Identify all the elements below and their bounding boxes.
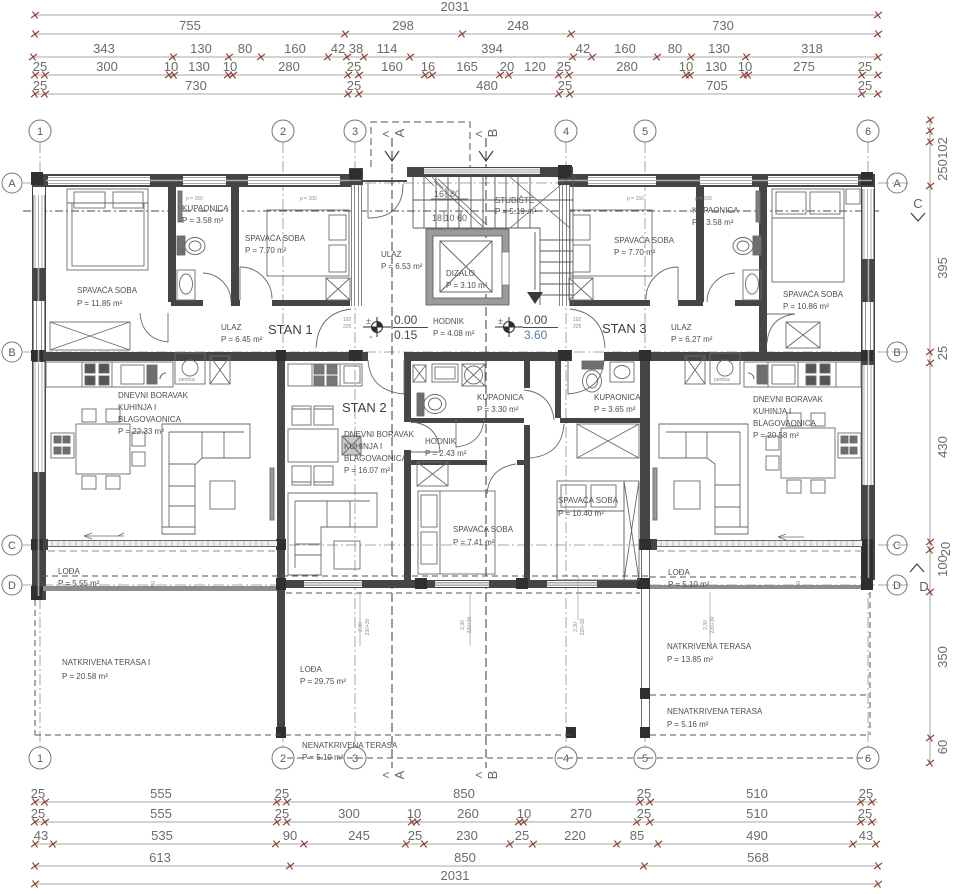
svg-text:350: 350 [935,646,950,668]
svg-text:BLAGOVAONICA: BLAGOVAONICA [118,415,182,424]
svg-text:C: C [893,540,901,552]
svg-text:3: 3 [352,126,358,138]
svg-text:480: 480 [476,78,498,93]
svg-text:NATKRIVENA TERASA: NATKRIVENA TERASA [667,642,752,651]
svg-text:P = 5.16 m²: P = 5.16 m² [667,720,709,729]
svg-text:P = 5.55 m²: P = 5.55 m² [58,579,100,588]
svg-text:±: ± [366,316,371,326]
svg-text:P = 22.33 m²: P = 22.33 m² [118,427,164,436]
svg-text:NENATKRIVENA TERASA: NENATKRIVENA TERASA [302,741,398,750]
svg-text:C: C [8,540,16,552]
svg-text:220+30: 220+30 [467,616,473,633]
svg-text:P = 3.30 m²: P = 3.30 m² [477,405,519,414]
svg-text:25: 25 [935,346,950,360]
svg-text:P = 29.75 m²: P = 29.75 m² [300,677,346,686]
svg-text:P = 7.41 m²: P = 7.41 m² [453,538,495,547]
svg-text:STAN 3: STAN 3 [602,321,647,336]
svg-text:C: C [913,196,922,211]
svg-text:25: 25 [31,806,45,821]
svg-text:P = 5.10 m²: P = 5.10 m² [668,580,710,589]
svg-text:850: 850 [453,786,475,801]
svg-text:250: 250 [935,159,950,181]
svg-text:25: 25 [31,786,45,801]
svg-text:P = 6.53 m²: P = 6.53 m² [381,262,423,271]
svg-text:KUHINJA I: KUHINJA I [753,407,791,416]
svg-text:25: 25 [557,59,571,74]
svg-text:280: 280 [278,59,300,74]
svg-text:perilica: perilica [179,377,195,383]
svg-text:NENATKRIVENA TERASA: NENATKRIVENA TERASA [667,707,763,716]
svg-text:p = 160: p = 160 [186,196,203,202]
svg-text:10: 10 [223,59,237,74]
svg-text:10: 10 [738,59,752,74]
svg-text:1: 1 [37,126,43,138]
svg-text:16: 16 [421,59,435,74]
svg-text:10: 10 [517,806,531,821]
svg-text:260: 260 [457,806,479,821]
svg-text:395: 395 [935,257,950,279]
svg-text:394: 394 [481,41,503,56]
svg-text:2,30: 2,30 [460,620,466,630]
svg-text:555: 555 [150,806,172,821]
svg-text:25: 25 [858,78,872,93]
svg-text:220+30: 220+30 [365,618,371,635]
svg-text:165: 165 [456,59,478,74]
svg-text:3: 3 [352,753,358,765]
svg-text:298: 298 [392,18,414,33]
svg-text:KUPAONICA: KUPAONICA [594,393,641,402]
svg-text:2031: 2031 [441,868,470,883]
svg-text:25: 25 [558,78,572,93]
svg-text:130: 130 [190,41,212,56]
svg-text:42: 42 [331,41,345,56]
svg-text:120: 120 [524,59,546,74]
svg-text:25: 25 [275,806,289,821]
svg-text:25: 25 [33,59,47,74]
svg-text:P = 5.19 m²: P = 5.19 m² [495,207,537,216]
svg-text:1: 1 [37,753,43,765]
svg-text:STAN 2: STAN 2 [342,400,387,415]
svg-text:130: 130 [705,59,727,74]
svg-text:20: 20 [938,542,953,556]
svg-text:BLAGOVAONICA: BLAGOVAONICA [344,454,408,463]
svg-text:755: 755 [179,18,201,33]
svg-text:160: 160 [284,41,306,56]
svg-text:90: 90 [283,828,297,843]
svg-text:275: 275 [793,59,815,74]
svg-text:P = 20.58 m²: P = 20.58 m² [753,431,799,440]
svg-text:P = 4.08 m²: P = 4.08 m² [433,329,475,338]
svg-text:220+30: 220+30 [710,616,716,633]
svg-text:2,30: 2,30 [358,622,364,632]
svg-text:280: 280 [616,59,638,74]
svg-text:B: B [8,347,15,359]
svg-text:20: 20 [500,59,514,74]
svg-text:A: A [392,128,407,137]
svg-text:P = 7.70 m²: P = 7.70 m² [614,248,656,257]
svg-text:P = 10.40 m²: P = 10.40 m² [558,509,604,518]
svg-text:300: 300 [96,59,118,74]
svg-text:±: ± [498,316,503,326]
svg-text:2,30: 2,30 [703,620,709,630]
svg-text:850: 850 [454,850,476,865]
svg-text:ULAZ: ULAZ [671,323,692,332]
svg-text:248: 248 [507,18,529,33]
svg-text:102: 102 [935,137,950,159]
svg-text:490: 490 [746,828,768,843]
svg-text:KUPAONICA: KUPAONICA [182,204,229,213]
svg-text:LOĐA: LOĐA [300,665,322,674]
svg-text:225: 225 [573,324,582,330]
svg-text:2031: 2031 [441,0,470,14]
svg-text:0.15: 0.15 [394,328,418,342]
svg-text:<: < [382,768,389,782]
svg-text:ULAZ: ULAZ [221,323,242,332]
svg-text:100: 100 [935,555,950,577]
svg-text:25: 25 [637,786,651,801]
svg-text:P = 5.10 m²: P = 5.10 m² [302,753,344,762]
svg-text:160: 160 [381,59,403,74]
svg-text:730: 730 [185,78,207,93]
svg-text:KUHINJA I: KUHINJA I [118,403,156,412]
svg-text:P = 3.10 m²: P = 3.10 m² [446,281,488,290]
svg-text:STAN 1: STAN 1 [268,322,313,337]
svg-text:10: 10 [407,806,421,821]
svg-text:p = 100: p = 100 [300,196,317,202]
svg-text:43: 43 [859,828,873,843]
svg-text:25: 25 [347,78,361,93]
svg-text:300: 300 [338,806,360,821]
svg-text:130: 130 [708,41,730,56]
svg-text:343: 343 [93,41,115,56]
svg-text:18 10 60: 18 10 60 [432,213,467,223]
svg-text:730: 730 [712,18,734,33]
svg-text:B: B [485,129,500,138]
svg-text:P = 10.86 m²: P = 10.86 m² [783,302,829,311]
svg-text:<: < [475,127,482,141]
svg-text:430: 430 [935,436,950,458]
svg-text:10: 10 [164,59,178,74]
svg-text:A: A [893,178,901,190]
svg-text:38: 38 [349,41,363,56]
svg-text:555: 555 [150,786,172,801]
svg-text:A: A [8,178,16,190]
svg-text:DNEVNI BORAVAK: DNEVNI BORAVAK [753,395,824,404]
svg-text:250: 250 [796,581,802,590]
svg-text:P = 7.70 m²: P = 7.70 m² [245,246,287,255]
svg-text:DNEVNI BORAVAK: DNEVNI BORAVAK [344,430,415,439]
svg-text:2: 2 [280,753,286,765]
svg-text:114: 114 [377,41,398,56]
svg-text:25: 25 [858,59,872,74]
svg-text:270: 270 [570,806,592,821]
svg-text:10: 10 [679,59,693,74]
svg-text:BLAGOVAONICA: BLAGOVAONICA [753,419,817,428]
svg-text:P = 11.85 m²: P = 11.85 m² [77,299,123,308]
svg-text:<: < [382,127,389,141]
svg-text:-: - [369,331,373,343]
svg-text:613: 613 [149,850,171,865]
svg-text:6: 6 [865,753,871,765]
svg-text:102: 102 [573,317,582,323]
svg-text:B: B [893,347,900,359]
svg-text:STUBIŠTE: STUBIŠTE [495,196,534,205]
svg-text:SPAVAĆA SOBA: SPAVAĆA SOBA [614,236,675,245]
svg-text:SPAVAĆA SOBA: SPAVAĆA SOBA [453,525,514,534]
svg-text:160: 160 [614,41,636,56]
svg-text:4: 4 [563,126,569,138]
svg-text:P = 3.58 m²: P = 3.58 m² [692,218,734,227]
svg-text:perilica: perilica [714,377,730,383]
svg-text:318: 318 [801,41,823,56]
svg-text:43: 43 [34,828,48,843]
svg-text:ULAZ: ULAZ [381,250,402,259]
svg-text:25: 25 [858,806,872,821]
svg-text:KUPAONICA: KUPAONICA [692,206,739,215]
svg-text:25: 25 [347,59,361,74]
svg-text:p = 160: p = 160 [695,196,712,202]
svg-text:D: D [8,580,16,592]
svg-text:P = 3.65 m²: P = 3.65 m² [594,405,636,414]
svg-text:568: 568 [747,850,769,865]
svg-text:A: A [392,770,407,779]
svg-text:p = 150: p = 150 [627,196,644,202]
svg-text:80: 80 [238,41,252,56]
svg-text:D: D [919,579,928,594]
svg-text:705: 705 [706,78,728,93]
svg-text:25: 25 [275,786,289,801]
svg-text:P = 13.85 m²: P = 13.85 m² [667,655,713,664]
svg-text:KUHINJA I: KUHINJA I [344,442,382,451]
svg-text:P = 6.27 m²: P = 6.27 m² [671,335,713,344]
svg-text:102: 102 [343,317,352,323]
svg-text:80: 80 [450,189,460,199]
svg-text:85: 85 [630,828,644,843]
svg-text:60: 60 [935,740,950,754]
svg-text:5: 5 [642,753,648,765]
svg-text:130: 130 [188,59,210,74]
svg-text:DNEVNI BORAVAK: DNEVNI BORAVAK [118,391,189,400]
svg-text:4: 4 [563,753,569,765]
svg-text:2: 2 [280,126,286,138]
svg-text:0.00: 0.00 [394,313,418,327]
svg-text:80: 80 [668,41,682,56]
svg-text:3.60: 3.60 [524,328,548,342]
svg-text:250: 250 [151,581,157,590]
svg-text:KUPAONICA: KUPAONICA [477,393,524,402]
svg-text:510: 510 [746,786,768,801]
svg-text:P = 20.58 m²: P = 20.58 m² [62,672,108,681]
svg-text:SPAVAĆA SOBA: SPAVAĆA SOBA [77,286,138,295]
svg-text:0.00: 0.00 [524,313,548,327]
svg-text:SPAVAĆA SOBA: SPAVAĆA SOBA [783,290,844,299]
svg-text:DIZALO: DIZALO [446,269,475,278]
svg-text:<: < [475,768,482,782]
svg-text:510: 510 [746,806,768,821]
svg-text:225: 225 [343,324,352,330]
svg-text:25: 25 [515,828,529,843]
svg-text:230: 230 [456,828,478,843]
svg-text:B: B [485,771,500,780]
svg-text:25: 25 [408,828,422,843]
svg-text:HODNIK: HODNIK [425,437,457,446]
svg-text:NATKRIVENA TERASA I: NATKRIVENA TERASA I [62,658,150,667]
svg-text:SPAVAĆA SOBA: SPAVAĆA SOBA [245,234,306,243]
svg-text:25: 25 [33,78,47,93]
svg-text:P = 3.58 m²: P = 3.58 m² [182,216,224,225]
svg-text:LOĐA: LOĐA [668,568,690,577]
svg-text:245: 245 [348,828,370,843]
svg-text:220+30: 220+30 [580,618,586,635]
svg-text:2,30: 2,30 [573,622,579,632]
svg-text:6: 6 [865,126,871,138]
svg-text:HODNIK: HODNIK [433,317,465,326]
svg-text:LOĐA: LOĐA [58,567,80,576]
svg-text:25: 25 [859,786,873,801]
svg-text:220: 220 [564,828,586,843]
svg-text:SPAVAĆA SOBA: SPAVAĆA SOBA [558,496,619,505]
svg-text:535: 535 [151,828,173,843]
svg-text:16: 16 [434,189,444,199]
svg-text:25: 25 [637,806,651,821]
svg-text:P = 6.45 m²: P = 6.45 m² [221,335,263,344]
svg-text:P = 16.07 m²: P = 16.07 m² [344,466,390,475]
svg-text:P = 2.43 m²: P = 2.43 m² [425,449,467,458]
svg-text:5: 5 [642,126,648,138]
svg-text:42: 42 [576,41,590,56]
svg-text:D: D [893,580,901,592]
